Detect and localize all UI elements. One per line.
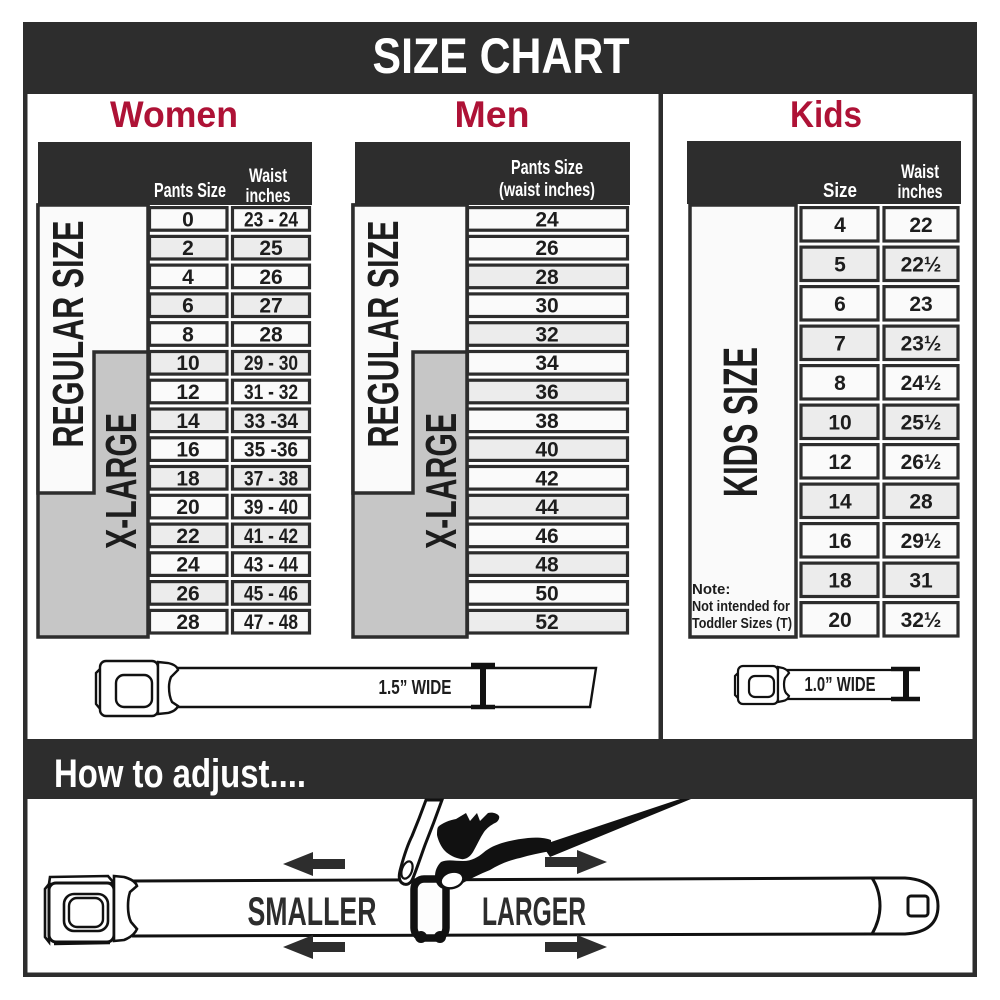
svg-text:Size: Size (823, 180, 857, 202)
svg-text:44: 44 (535, 496, 559, 519)
svg-text:23½: 23½ (901, 332, 942, 355)
svg-text:SIZE CHART: SIZE CHART (373, 28, 630, 84)
svg-text:10: 10 (828, 411, 851, 434)
svg-text:28: 28 (259, 324, 283, 347)
svg-text:Waist: Waist (901, 162, 940, 183)
svg-text:Men: Men (455, 94, 530, 135)
svg-text:6: 6 (182, 295, 194, 318)
svg-text:50: 50 (535, 582, 558, 605)
svg-text:28: 28 (535, 266, 559, 289)
svg-text:14: 14 (828, 490, 852, 513)
svg-text:7: 7 (834, 332, 846, 355)
svg-text:23 - 24: 23 - 24 (244, 208, 298, 231)
svg-text:41 - 42: 41 - 42 (244, 525, 298, 548)
svg-text:5: 5 (834, 253, 846, 276)
svg-text:4: 4 (182, 266, 194, 289)
svg-text:inches: inches (898, 182, 943, 203)
svg-text:24½: 24½ (901, 372, 942, 395)
svg-text:20: 20 (828, 609, 851, 632)
svg-text:2: 2 (182, 237, 194, 260)
svg-text:8: 8 (834, 372, 846, 395)
svg-text:12: 12 (828, 451, 851, 474)
svg-text:28: 28 (909, 490, 933, 513)
svg-text:Waist: Waist (249, 166, 288, 187)
svg-text:6: 6 (834, 293, 846, 316)
svg-text:29 - 30: 29 - 30 (244, 352, 298, 375)
svg-text:LARGER: LARGER (482, 890, 586, 934)
svg-text:Toddler Sizes (T): Toddler Sizes (T) (692, 615, 792, 632)
svg-text:20: 20 (176, 496, 199, 519)
svg-text:35 -36: 35 -36 (244, 439, 298, 462)
svg-text:43 - 44: 43 - 44 (244, 554, 298, 577)
svg-text:16: 16 (828, 530, 851, 553)
svg-text:23: 23 (909, 293, 932, 316)
svg-text:39 - 40: 39 - 40 (244, 496, 298, 519)
svg-text:0: 0 (182, 208, 194, 231)
svg-text:26½: 26½ (901, 451, 942, 474)
svg-text:40: 40 (535, 439, 558, 462)
svg-text:8: 8 (182, 324, 194, 347)
svg-text:26: 26 (259, 266, 282, 289)
svg-text:X-LARGE: X-LARGE (97, 413, 146, 549)
svg-text:16: 16 (176, 439, 199, 462)
svg-text:37 - 38: 37 - 38 (244, 467, 298, 490)
svg-text:36: 36 (535, 381, 558, 404)
svg-text:10: 10 (176, 352, 199, 375)
svg-text:25: 25 (259, 237, 283, 260)
svg-text:33 -34: 33 -34 (244, 410, 298, 433)
svg-text:1.0” WIDE: 1.0” WIDE (805, 674, 876, 696)
svg-text:31: 31 (909, 569, 933, 592)
svg-text:(waist inches): (waist inches) (499, 180, 595, 201)
svg-text:30: 30 (535, 295, 558, 318)
svg-text:Pants Size: Pants Size (154, 180, 226, 202)
svg-text:How to adjust....: How to adjust.... (54, 752, 306, 796)
svg-text:46: 46 (535, 525, 558, 548)
svg-text:18: 18 (828, 569, 852, 592)
svg-text:48: 48 (535, 554, 559, 577)
svg-text:26: 26 (176, 582, 199, 605)
svg-text:26: 26 (535, 237, 558, 260)
svg-text:Note:: Note: (692, 581, 730, 598)
svg-text:22: 22 (909, 214, 932, 237)
svg-text:45 - 46: 45 - 46 (244, 582, 298, 605)
svg-text:24: 24 (176, 554, 200, 577)
svg-text:X-LARGE: X-LARGE (417, 413, 466, 549)
svg-text:4: 4 (834, 214, 846, 237)
svg-text:inches: inches (246, 186, 291, 207)
svg-text:14: 14 (176, 410, 200, 433)
svg-text:24: 24 (535, 208, 559, 231)
svg-text:SMALLER: SMALLER (248, 890, 377, 934)
svg-text:REGULAR SIZE: REGULAR SIZE (44, 221, 93, 448)
svg-text:1.5” WIDE: 1.5” WIDE (379, 677, 452, 699)
svg-text:KIDS SIZE: KIDS SIZE (715, 347, 768, 497)
svg-text:22: 22 (176, 525, 199, 548)
svg-text:12: 12 (176, 381, 199, 404)
svg-text:22½: 22½ (901, 253, 942, 276)
svg-text:Not intended for: Not intended for (692, 598, 790, 615)
svg-text:Women: Women (110, 94, 238, 135)
svg-text:31 - 32: 31 - 32 (244, 381, 298, 404)
svg-text:Kids: Kids (790, 94, 862, 135)
svg-text:29½: 29½ (901, 530, 942, 553)
svg-text:27: 27 (259, 295, 282, 318)
svg-text:18: 18 (176, 467, 200, 490)
svg-text:38: 38 (535, 410, 559, 433)
svg-text:32: 32 (535, 324, 558, 347)
svg-text:28: 28 (176, 611, 200, 634)
svg-text:32½: 32½ (901, 609, 942, 632)
svg-text:34: 34 (535, 352, 559, 375)
svg-text:42: 42 (535, 467, 558, 490)
svg-text:47 - 48: 47 - 48 (244, 611, 298, 634)
svg-text:Pants Size: Pants Size (511, 157, 583, 179)
svg-text:25½: 25½ (901, 411, 942, 434)
svg-text:REGULAR SIZE: REGULAR SIZE (359, 221, 408, 448)
svg-text:52: 52 (535, 611, 558, 634)
